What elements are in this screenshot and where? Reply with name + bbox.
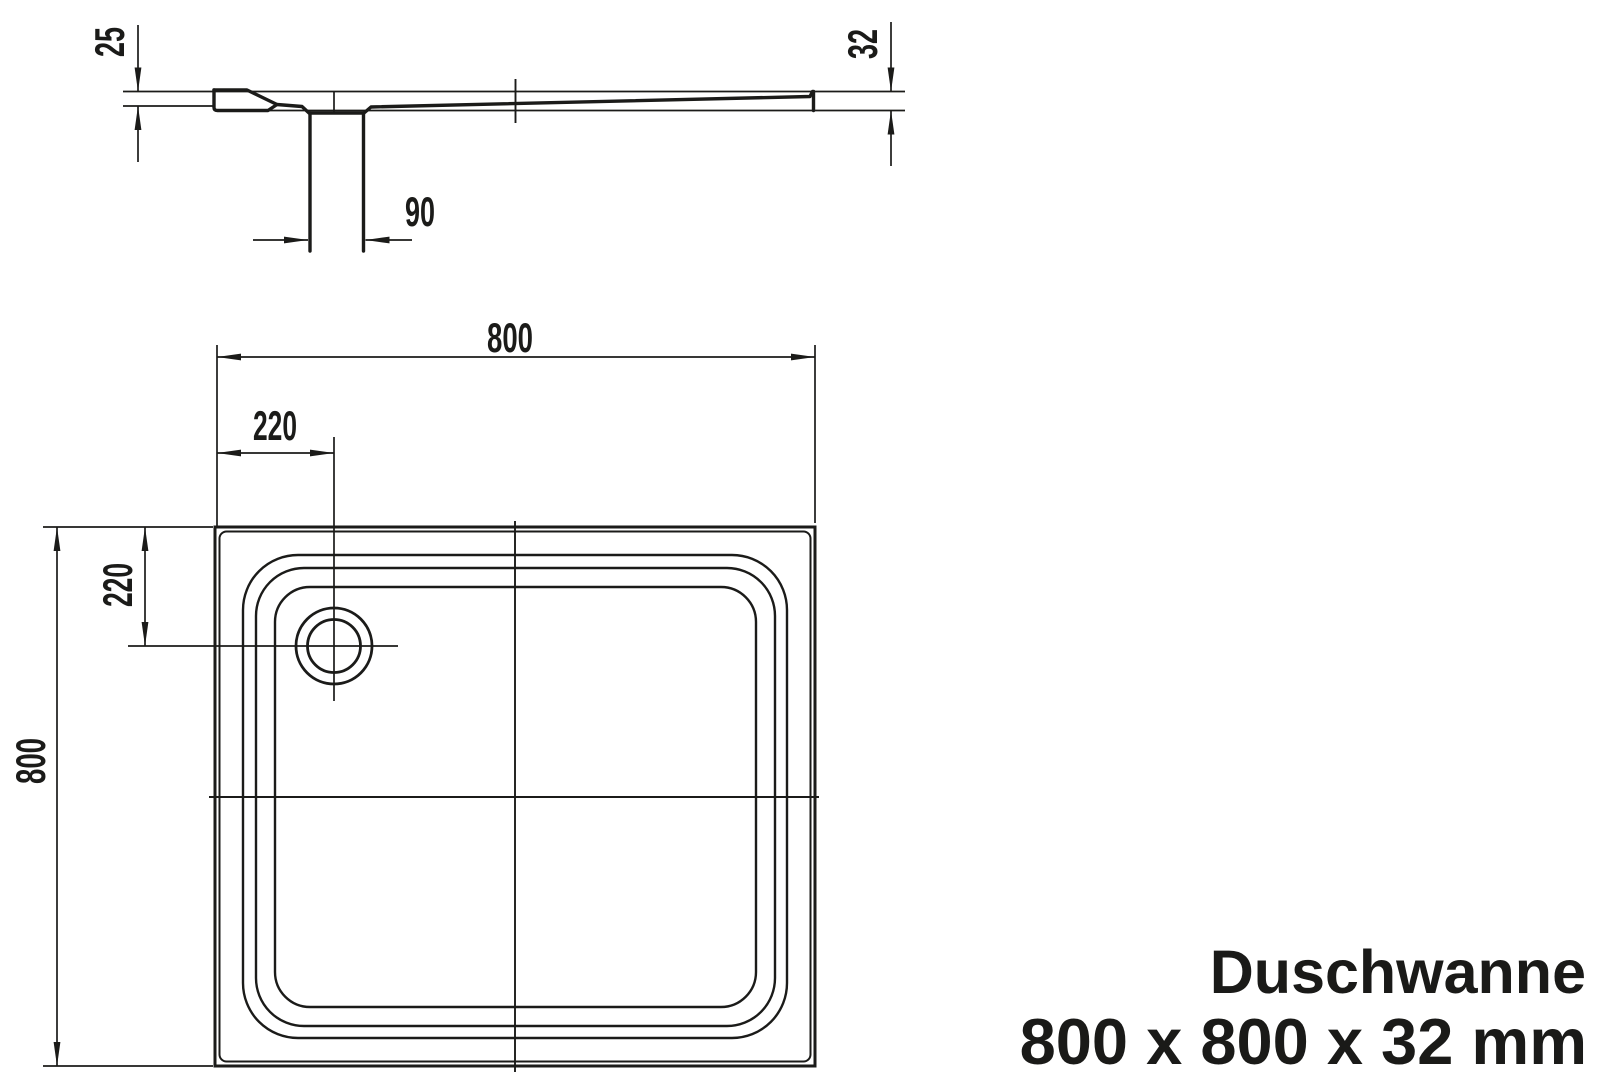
dim-width-label: 800 — [487, 314, 533, 361]
plan-view: 800 220 800 220 — [7, 314, 819, 1072]
title-block: Duschwanne 800 x 800 x 32 mm — [1020, 938, 1587, 1078]
dim-drain-width-label: 90 — [405, 188, 435, 235]
dim-drain-offset-x-label: 220 — [253, 402, 297, 449]
tray-profile — [214, 90, 813, 113]
technical-drawing-page: 25 32 90 — [0, 0, 1624, 1080]
dim-total-height-label: 32 — [839, 29, 886, 59]
product-name: Duschwanne — [1210, 938, 1586, 1006]
dim-drain-offset-y-label: 220 — [94, 563, 141, 607]
dim-drain-width: 90 — [253, 188, 435, 240]
product-size: 800 x 800 x 32 mm — [1020, 1005, 1587, 1078]
dim-rim-height: 25 — [86, 25, 138, 162]
dim-rim-height-label: 25 — [86, 27, 133, 57]
dim-depth-label: 800 — [7, 738, 54, 784]
dim-drain-offset-x: 220 — [217, 402, 334, 453]
dim-drain-offset-y: 220 — [94, 527, 145, 646]
dim-total-height: 32 — [839, 22, 891, 166]
dim-depth: 800 — [7, 527, 57, 1066]
dim-width: 800 — [217, 314, 815, 361]
shower-tray-drawing: 25 32 90 — [0, 0, 1624, 1080]
section-view: 25 32 90 — [86, 22, 905, 251]
